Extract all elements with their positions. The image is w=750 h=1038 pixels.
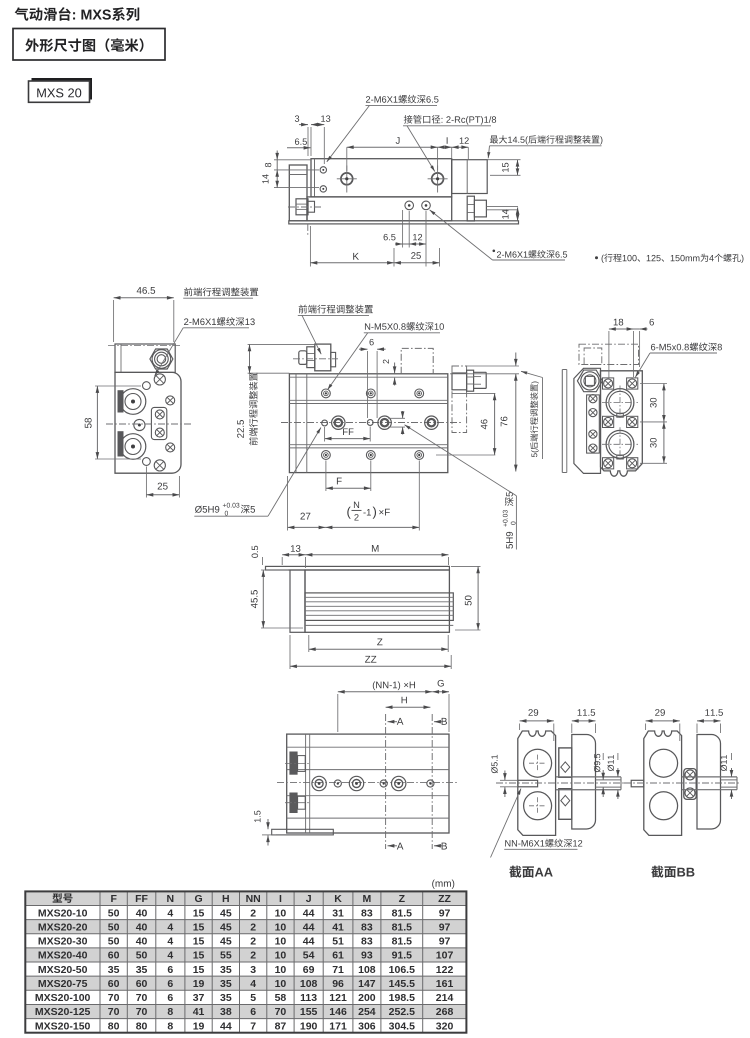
svg-text:61: 61 (332, 950, 344, 962)
svg-text:147: 147 (358, 978, 376, 990)
svg-text:146: 146 (329, 1006, 347, 1018)
svg-text:106.5: 106.5 (389, 964, 415, 976)
svg-text:83: 83 (361, 907, 373, 919)
svg-text:35: 35 (220, 978, 232, 990)
svg-text:FF: FF (135, 893, 148, 905)
svg-text:40: 40 (136, 936, 148, 948)
svg-text:35: 35 (136, 964, 148, 976)
svg-text:4: 4 (250, 978, 256, 990)
svg-text:6: 6 (167, 978, 173, 990)
svg-text:MXS20-75: MXS20-75 (38, 978, 88, 990)
svg-text:268: 268 (436, 1006, 454, 1018)
svg-text:97: 97 (439, 936, 451, 948)
svg-text:60: 60 (136, 978, 148, 990)
svg-text:50: 50 (108, 907, 120, 919)
svg-text:MXS20-50: MXS20-50 (38, 964, 88, 976)
svg-text:45: 45 (220, 921, 232, 933)
svg-text:10: 10 (275, 907, 287, 919)
svg-text:252.5: 252.5 (389, 1006, 415, 1018)
svg-text:MXS20-40: MXS20-40 (38, 950, 88, 962)
svg-text:31: 31 (332, 907, 344, 919)
svg-text:190: 190 (300, 1020, 318, 1032)
svg-text:145.5: 145.5 (389, 978, 415, 990)
svg-text:121: 121 (329, 992, 347, 1004)
svg-text:35: 35 (220, 964, 232, 976)
svg-text:93: 93 (361, 950, 373, 962)
svg-text:44: 44 (303, 936, 315, 948)
svg-text:40: 40 (136, 907, 148, 919)
svg-text:45: 45 (220, 936, 232, 948)
svg-text:10: 10 (275, 921, 287, 933)
svg-text:38: 38 (220, 1006, 232, 1018)
svg-text:10: 10 (275, 936, 287, 948)
svg-text:MXS20-150: MXS20-150 (35, 1020, 91, 1032)
svg-text:40: 40 (136, 921, 148, 933)
svg-text:6: 6 (167, 964, 173, 976)
svg-text:8: 8 (167, 1020, 173, 1032)
svg-text:8: 8 (167, 1006, 173, 1018)
svg-text:3: 3 (250, 964, 256, 976)
svg-text:ZZ: ZZ (438, 893, 451, 905)
svg-text:51: 51 (332, 936, 344, 948)
svg-text:71: 71 (332, 964, 344, 976)
svg-text:41: 41 (193, 1006, 205, 1018)
svg-text:58: 58 (275, 992, 287, 1004)
svg-text:91.5: 91.5 (392, 950, 413, 962)
svg-text:MXS20-125: MXS20-125 (35, 1006, 91, 1018)
svg-text:70: 70 (275, 1006, 287, 1018)
svg-text:161: 161 (436, 978, 454, 990)
svg-text:44: 44 (303, 921, 315, 933)
svg-text:81.5: 81.5 (392, 936, 413, 948)
svg-text:54: 54 (303, 950, 315, 962)
svg-text:15: 15 (193, 921, 205, 933)
svg-text:7: 7 (250, 1020, 256, 1032)
svg-text:70: 70 (136, 1006, 148, 1018)
svg-text:15: 15 (193, 907, 205, 919)
svg-text:41: 41 (332, 921, 344, 933)
svg-text:87: 87 (275, 1020, 287, 1032)
svg-text:70: 70 (136, 992, 148, 1004)
svg-text:4: 4 (167, 936, 173, 948)
svg-text:113: 113 (300, 992, 317, 1004)
svg-text:171: 171 (329, 1020, 347, 1032)
svg-text:83: 83 (361, 936, 373, 948)
svg-text:107: 107 (436, 950, 454, 962)
svg-text:108: 108 (358, 964, 376, 976)
svg-text:I: I (279, 893, 282, 905)
svg-text:50: 50 (108, 921, 120, 933)
svg-text:MXS20-100: MXS20-100 (35, 992, 91, 1004)
svg-text:2: 2 (250, 907, 256, 919)
svg-text:2: 2 (250, 921, 256, 933)
svg-text:6: 6 (250, 1006, 256, 1018)
svg-text:44: 44 (220, 1020, 232, 1032)
svg-text:F: F (110, 893, 117, 905)
svg-text:97: 97 (439, 907, 451, 919)
svg-text:19: 19 (193, 1020, 205, 1032)
svg-text:H: H (222, 893, 230, 905)
svg-text:4: 4 (167, 907, 173, 919)
svg-text:122: 122 (436, 964, 454, 976)
svg-text:15: 15 (193, 950, 205, 962)
svg-text:81.5: 81.5 (392, 921, 413, 933)
svg-text:NN: NN (246, 893, 261, 905)
svg-text:5: 5 (250, 992, 256, 1004)
svg-text:N: N (167, 893, 175, 905)
svg-text:55: 55 (220, 950, 232, 962)
svg-text:96: 96 (332, 978, 344, 990)
svg-text:254: 254 (358, 1006, 376, 1018)
svg-text:80: 80 (108, 1020, 120, 1032)
svg-text:4: 4 (167, 921, 173, 933)
svg-text:70: 70 (108, 1006, 120, 1018)
svg-text:44: 44 (303, 907, 315, 919)
svg-text:MXS20-10: MXS20-10 (38, 907, 88, 919)
svg-text:60: 60 (108, 978, 120, 990)
svg-text:MXS20-20: MXS20-20 (38, 921, 88, 933)
svg-text:45: 45 (220, 907, 232, 919)
svg-text:198.5: 198.5 (389, 992, 415, 1004)
svg-text:4: 4 (167, 950, 173, 962)
svg-text:Z: Z (399, 893, 406, 905)
svg-text:214: 214 (436, 992, 454, 1004)
svg-text:MXS20-30: MXS20-30 (38, 936, 88, 948)
svg-text:200: 200 (358, 992, 376, 1004)
svg-text:35: 35 (220, 992, 232, 1004)
svg-text:2: 2 (250, 950, 256, 962)
svg-text:15: 15 (193, 936, 205, 948)
svg-text:97: 97 (439, 921, 451, 933)
svg-text:K: K (334, 893, 342, 905)
svg-text:10: 10 (275, 978, 287, 990)
svg-text:50: 50 (108, 936, 120, 948)
svg-text:155: 155 (300, 1006, 318, 1018)
svg-text:35: 35 (108, 964, 120, 976)
svg-text:108: 108 (300, 978, 318, 990)
svg-text:50: 50 (136, 950, 148, 962)
svg-text:10: 10 (275, 950, 287, 962)
svg-text:M: M (363, 893, 372, 905)
svg-text:69: 69 (303, 964, 315, 976)
svg-text:80: 80 (136, 1020, 148, 1032)
svg-text:70: 70 (108, 992, 120, 1004)
svg-text:304.5: 304.5 (389, 1020, 415, 1032)
svg-text:81.5: 81.5 (392, 907, 413, 919)
svg-text:60: 60 (108, 950, 120, 962)
svg-text:J: J (306, 893, 312, 905)
svg-text:15: 15 (193, 964, 205, 976)
svg-text:10: 10 (275, 964, 287, 976)
svg-text:306: 306 (358, 1020, 376, 1032)
svg-text:320: 320 (436, 1020, 454, 1032)
svg-text:37: 37 (193, 992, 205, 1004)
svg-text:83: 83 (361, 921, 373, 933)
svg-text:G: G (194, 893, 202, 905)
svg-text:19: 19 (193, 978, 205, 990)
svg-text:2: 2 (250, 936, 256, 948)
svg-text:6: 6 (167, 992, 173, 1004)
